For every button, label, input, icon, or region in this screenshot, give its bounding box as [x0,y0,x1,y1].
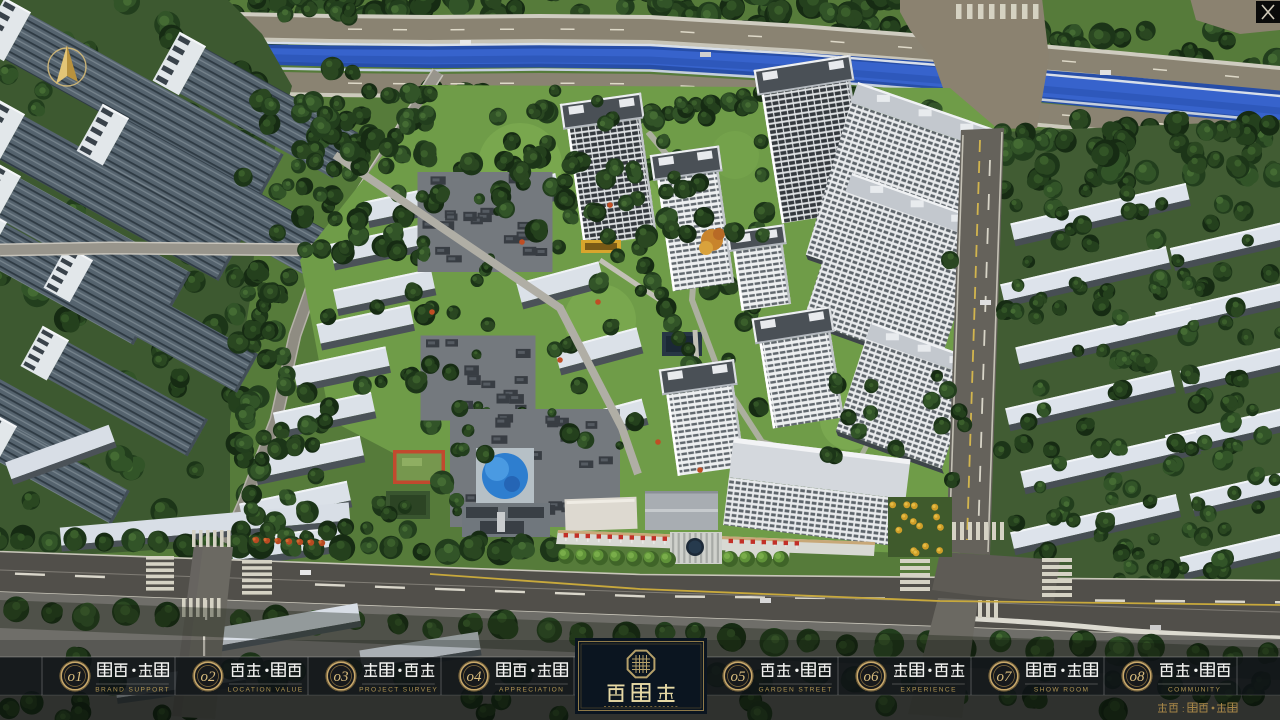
svg-text:o1: o1 [68,669,83,685]
svg-text:o2: o2 [201,669,217,685]
svg-text:BRAND SUPPORT: BRAND SUPPORT [95,687,170,694]
